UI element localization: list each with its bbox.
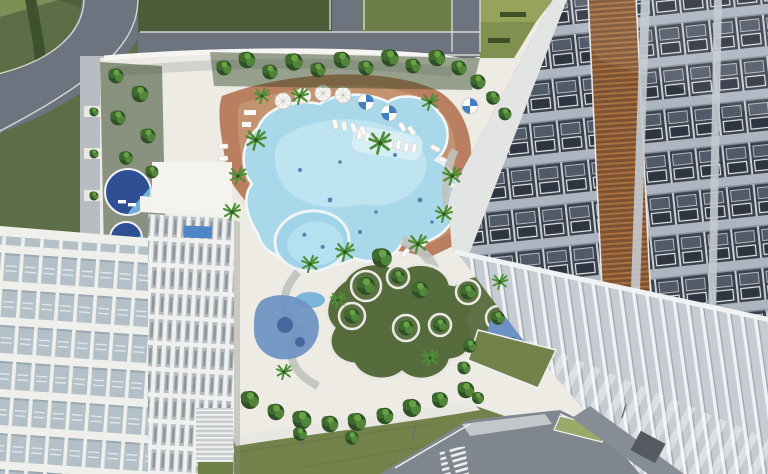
left-tower-facade [0, 236, 148, 474]
left-tower-upper-roof [152, 162, 232, 212]
umbrella-white [275, 93, 291, 109]
play-structure [277, 317, 293, 333]
umbrella-blue [381, 105, 397, 121]
hedge-row [488, 38, 510, 43]
umbrella-blue [462, 98, 478, 114]
deck-table [244, 110, 256, 115]
lawn-mid-north [362, 0, 452, 32]
play-structure [295, 337, 305, 347]
exterior-stairs [196, 408, 233, 466]
aerial-render: Aerial top-down 3D rendering of a resort… [0, 0, 768, 474]
tower-shadow-line [234, 220, 240, 474]
road-stub-2 [450, 0, 482, 58]
rooftop-pool [184, 226, 212, 239]
road-stub-1 [330, 0, 364, 36]
stair-lawn [198, 462, 233, 474]
lawn-panel-north [138, 0, 332, 32]
zebra-crosswalk [439, 446, 469, 474]
umbrella-blue [358, 94, 374, 110]
hedge-row [500, 12, 526, 17]
umbrella-white [335, 87, 351, 103]
render-canvas [0, 0, 768, 474]
